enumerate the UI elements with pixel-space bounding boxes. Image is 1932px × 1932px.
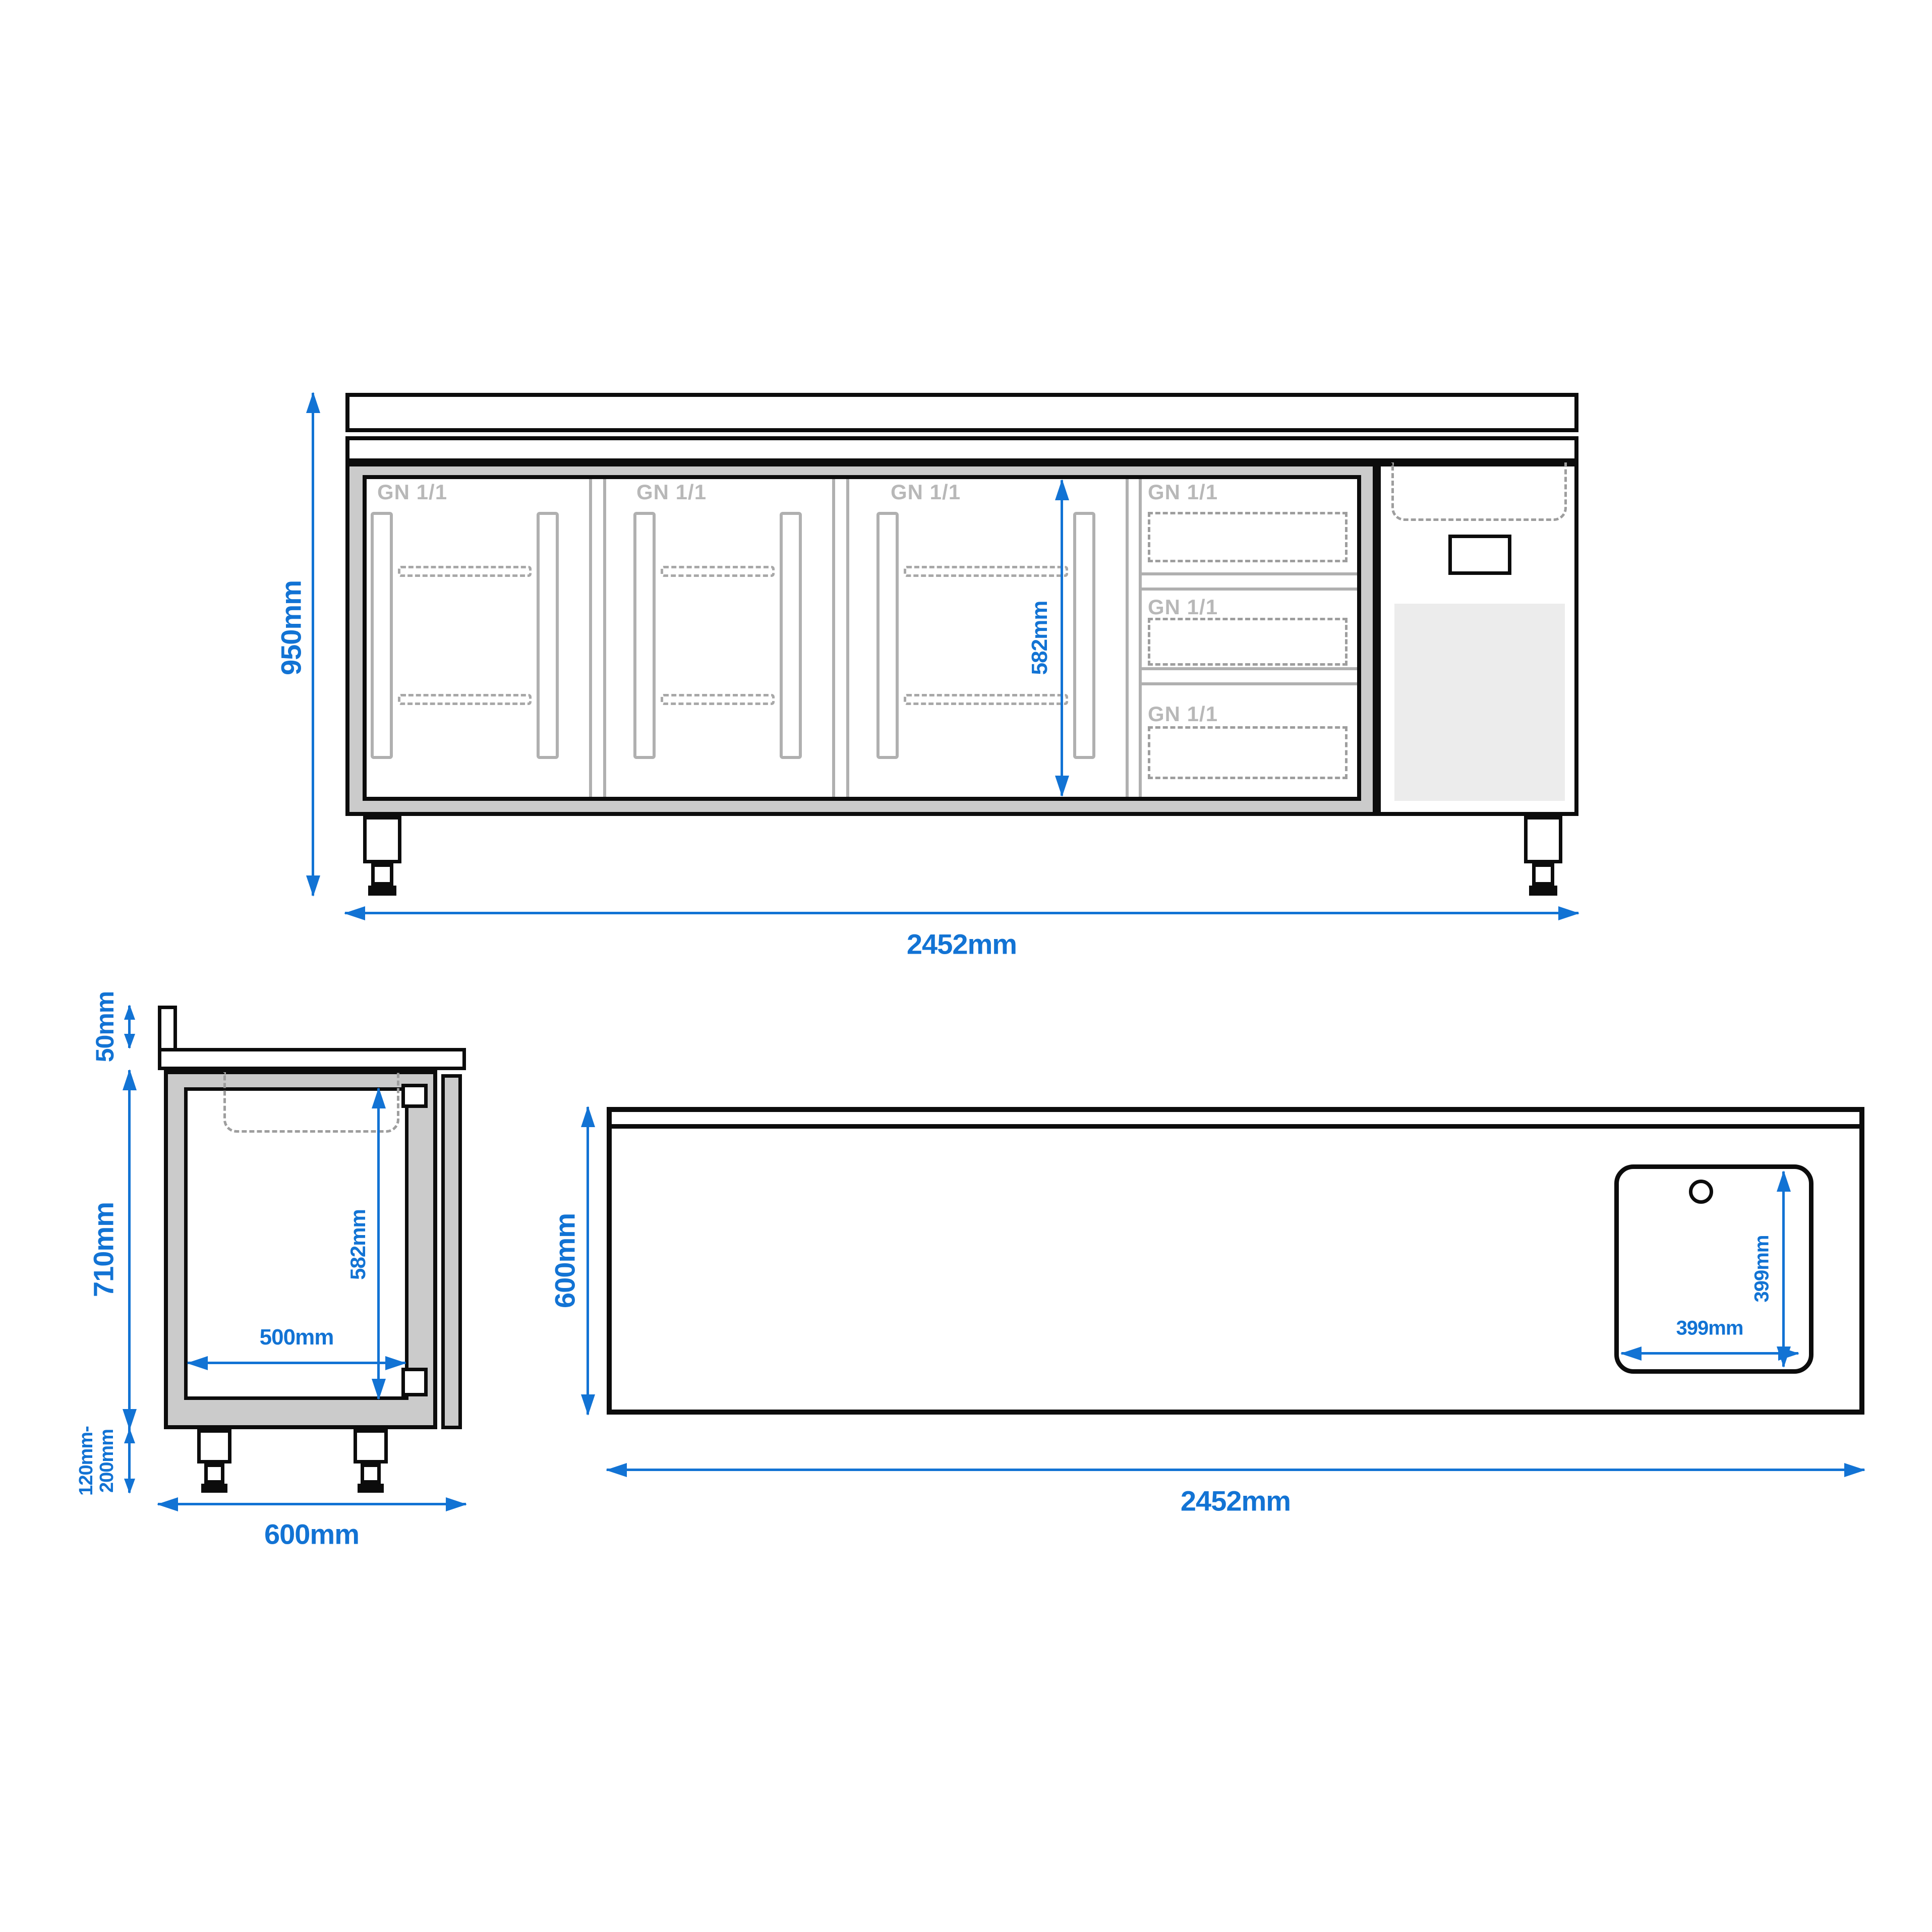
shelf-outline — [398, 694, 532, 705]
dimension-label-inner-height: 582mm — [1027, 601, 1052, 675]
drawer-pan-outline — [1148, 512, 1348, 562]
dimension-label-inner-depth: 500mm — [260, 1325, 334, 1350]
dimension-arrow-inner-height — [1061, 480, 1063, 796]
door-divider-line — [1126, 479, 1129, 797]
door-handle — [780, 512, 802, 759]
dimension-arrow-body-height — [128, 1070, 131, 1429]
door-recess-notch — [401, 1368, 428, 1396]
foot-lower — [1532, 863, 1554, 886]
leg-height-line1: 120mm- — [76, 1426, 97, 1496]
side-interior — [184, 1087, 408, 1400]
door-handle — [371, 512, 393, 759]
door-handle — [1073, 512, 1095, 759]
shelf-outline — [904, 694, 1068, 705]
foot-tip — [368, 886, 396, 896]
dimension-label-body-height: 710mm — [87, 1202, 120, 1297]
front-worktop-edge — [345, 436, 1578, 462]
side-door-slab — [441, 1074, 462, 1429]
dimension-arrow-depth — [158, 1503, 466, 1505]
shelf-outline — [398, 566, 532, 577]
drawer-divider-line — [1139, 572, 1357, 575]
dimension-label-inner-height-side: 582mm — [346, 1209, 370, 1280]
dimension-label-height: 950mm — [275, 580, 308, 675]
dimension-arrow-width — [345, 912, 1578, 914]
drawer-gn-label: GN 1/1 — [1148, 702, 1218, 726]
drawer-pan-outline — [1148, 618, 1348, 666]
leg-tip — [201, 1484, 227, 1493]
foot-upper — [363, 816, 401, 863]
leg-height-line2: 200mm — [96, 1429, 118, 1493]
leg-lower — [361, 1463, 381, 1484]
dimension-label-leg-height: 120mm- 200mm — [76, 1426, 118, 1496]
dimension-label-sink-depth: 399mm — [1751, 1236, 1774, 1303]
control-display — [1448, 535, 1511, 575]
door-handle — [537, 512, 559, 759]
dimension-label-sink-width: 399mm — [1676, 1317, 1743, 1340]
shelf-outline — [904, 566, 1068, 577]
dimension-label-width-top: 2452mm — [1181, 1485, 1291, 1517]
dimension-arrow-sink-depth — [1782, 1172, 1785, 1367]
door-gn-label: GN 1/1 — [891, 480, 961, 504]
door-gn-label: GN 1/1 — [636, 480, 707, 504]
side-backsplash — [158, 1006, 177, 1052]
leg-upper — [354, 1429, 388, 1463]
drawer-gn-label: GN 1/1 — [1148, 595, 1218, 619]
technical-drawing-canvas: GN 1/1 GN 1/1 GN 1/1 GN 1/1 GN 1/1 GN 1/… — [0, 0, 1932, 1932]
door-handle — [876, 512, 899, 759]
leg-tip — [358, 1484, 384, 1493]
foot-upper — [1524, 816, 1562, 863]
dimension-label-backsplash: 50mm — [90, 991, 120, 1063]
drawer-divider-line — [1139, 682, 1357, 685]
dimension-arrow-width-top — [607, 1469, 1864, 1471]
drawer-divider-line — [1139, 588, 1357, 591]
side-worktop — [158, 1048, 466, 1070]
door-divider-line — [589, 479, 592, 797]
dimension-label-depth-top: 600mm — [549, 1213, 581, 1308]
door-recess-notch — [401, 1084, 428, 1108]
drawer-gn-label: GN 1/1 — [1148, 480, 1218, 504]
tap-hole — [1689, 1180, 1713, 1204]
dimension-arrow-backsplash — [128, 1006, 131, 1048]
ventilation-grille — [1394, 604, 1565, 801]
dimension-arrow-inner-height-side — [377, 1088, 380, 1399]
drawer-divider-line — [1139, 667, 1357, 670]
drawer-pan-outline — [1148, 726, 1348, 779]
leg-upper — [197, 1429, 231, 1463]
shelf-outline — [661, 694, 775, 705]
door-divider-line — [832, 479, 835, 797]
dimension-label-depth: 600mm — [264, 1518, 359, 1551]
dimension-label-width: 2452mm — [907, 928, 1017, 961]
dimension-arrow-leg-height — [128, 1429, 131, 1493]
drawer-section-edge-line — [1139, 479, 1142, 797]
foot-tip — [1529, 886, 1557, 896]
door-gn-label: GN 1/1 — [377, 480, 447, 504]
shelf-outline — [661, 566, 775, 577]
dimension-arrow-depth-top — [587, 1107, 589, 1415]
door-handle — [633, 512, 656, 759]
top-back-edge-line — [610, 1124, 1861, 1129]
foot-lower — [371, 863, 393, 886]
dimension-arrow-height — [312, 393, 314, 896]
door-divider-line — [603, 479, 606, 797]
front-worktop — [345, 393, 1578, 432]
dimension-arrow-sink-width — [1621, 1352, 1798, 1355]
door-divider-line — [846, 479, 849, 797]
dimension-arrow-inner-depth — [188, 1362, 405, 1364]
sink-hidden-outline-front — [1391, 462, 1567, 521]
leg-lower — [204, 1463, 224, 1484]
